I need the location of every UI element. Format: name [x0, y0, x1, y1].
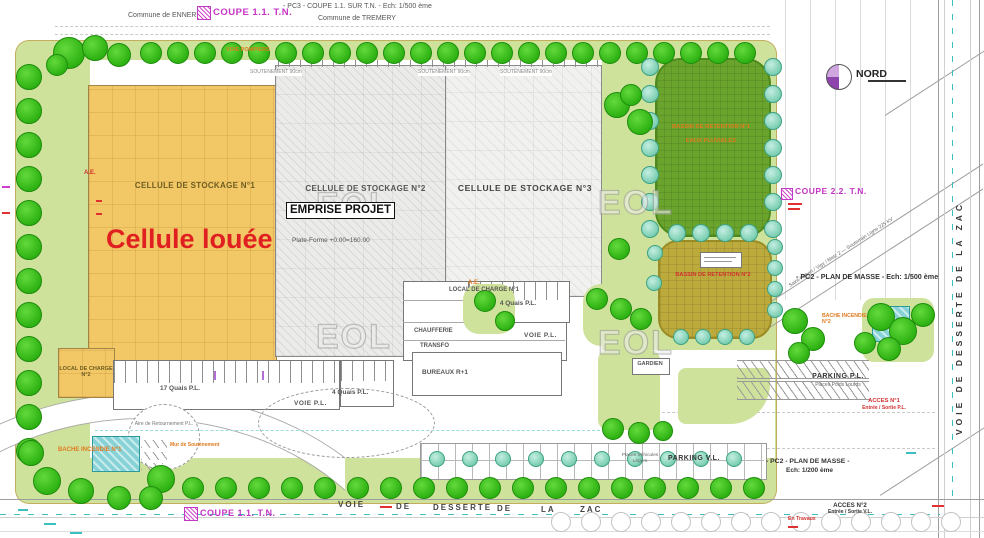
tree-icon — [528, 451, 544, 467]
fire-lane-label: VOIE POMPIERS — [226, 47, 270, 53]
parking-vl-label: PARKING V.L. — [668, 455, 720, 463]
tree-icon — [429, 451, 445, 467]
tree-icon — [641, 139, 659, 157]
tree-icon — [764, 85, 782, 103]
access-2-sub: Entrée / Sortie V.L. — [812, 510, 888, 516]
tree-icon — [644, 477, 666, 499]
tree-icon — [107, 43, 131, 67]
retaining-note: SOUTENEMENT 90cm — [250, 70, 302, 76]
parked-car-outline — [551, 512, 571, 532]
tree-icon — [764, 112, 782, 130]
tree-icon — [854, 332, 876, 354]
parked-car-outline — [641, 512, 661, 532]
parking-pl-label: PARKING P.L. — [792, 373, 884, 381]
parked-car-outline — [941, 512, 961, 532]
charge-room-2-label: LOCAL DE CHARGE N°2 — [56, 366, 116, 379]
tree-icon — [464, 42, 486, 64]
parked-car-outline — [701, 512, 721, 532]
tree-icon — [33, 467, 61, 495]
tree-icon — [608, 238, 630, 260]
voie-pl-label: VOIE P.L. — [294, 400, 327, 407]
tree-icon — [710, 477, 732, 499]
tick-mark — [788, 203, 802, 205]
tree-icon — [479, 477, 501, 499]
retaining-note: SOUTENEMENT 90cm — [418, 70, 470, 76]
parked-car-outline — [911, 512, 931, 532]
tree-icon — [788, 342, 810, 364]
tree-icon — [641, 85, 659, 103]
basin1-label: BASSIN DE RETENTION N°1 — [664, 124, 758, 131]
tick-mark — [262, 371, 264, 380]
tree-icon — [764, 139, 782, 157]
cell2-label: CELLULE DE STOCKAGE N°2 — [298, 184, 433, 193]
tree-icon — [653, 421, 673, 441]
cell1-label: CELLULE DE STOCKAGE N°1 — [120, 181, 270, 190]
dock-count-west: 17 Quais P.L. — [160, 385, 200, 392]
tree-icon — [16, 404, 42, 430]
tick-mark — [788, 208, 800, 210]
compass-icon — [826, 64, 852, 90]
tree-icon — [462, 451, 478, 467]
parked-car-outline — [731, 512, 751, 532]
compass-label: NORD — [856, 68, 887, 80]
tick-mark — [18, 509, 28, 511]
office-label: BUREAUX R+1 — [422, 369, 468, 376]
site-plan: Saint-Hubert / Vigy / Metz 2 — Souterrai… — [0, 0, 984, 538]
tree-icon — [647, 245, 663, 261]
voie-pl-label: VOIE P.L. — [524, 332, 557, 339]
tree-icon — [578, 477, 600, 499]
coupe-22-label: COUPE 2.2. T.N. — [795, 187, 867, 197]
eol-watermark: EOL — [598, 184, 674, 223]
access-1-sub: Entrée / Sortie P.L. — [846, 406, 922, 412]
fire-tank-1-label: BACHE INCENDIE N°1 — [58, 447, 130, 454]
tree-icon — [46, 54, 68, 76]
parking-pl-sub: Places Poids Lourds — [796, 383, 880, 389]
dock-count-cell3: 4 Quais P.L. — [488, 300, 548, 307]
tree-icon — [602, 418, 624, 440]
tree-icon — [437, 42, 459, 64]
tick-mark — [96, 213, 102, 215]
tree-icon — [16, 64, 42, 90]
tree-icon — [16, 234, 42, 260]
coupe-top-label: COUPE 1.1. T.N. — [213, 8, 292, 19]
road-name-word: LA — [541, 505, 556, 514]
tree-icon — [16, 302, 42, 328]
transfo-label: TRANSFO — [420, 343, 449, 350]
road-name-word: DESSERTE — [433, 503, 492, 512]
tree-icon — [716, 224, 734, 242]
tree-icon — [495, 311, 515, 331]
turning-area-label: Aire de Retournement P.L. — [131, 422, 197, 428]
road-name-word: ZAC — [580, 505, 602, 514]
tick-mark — [96, 200, 102, 202]
tree-icon — [594, 451, 610, 467]
tree-icon — [194, 42, 216, 64]
plateforme-note: Plate-Forme +0.00=160.00 — [292, 237, 370, 244]
tick-mark — [44, 523, 56, 525]
tree-icon — [764, 166, 782, 184]
tree-icon — [139, 486, 163, 510]
tree-icon — [82, 35, 108, 61]
tree-icon — [16, 268, 42, 294]
fire-tank-2-label: BACHE INCENDIE N°2 — [822, 314, 870, 326]
ae-note: A.E. — [84, 170, 96, 177]
basin1-label2: EAUX PLUVIALES — [672, 138, 750, 145]
pc2-bottom-scale: Ech: 1/200 ème — [786, 467, 833, 474]
tree-icon — [767, 302, 783, 318]
tree-icon — [140, 42, 162, 64]
pc2-right-note: - PC2 - PLAN DE MASSE - Ech: 1/500 ème — [796, 273, 938, 281]
tick-mark — [2, 212, 10, 214]
commune-right-label: Commune de TREMERY — [318, 15, 396, 23]
tree-icon — [767, 239, 783, 255]
tree-icon — [646, 275, 662, 291]
tree-icon — [16, 132, 42, 158]
tick-mark — [868, 80, 906, 82]
tree-icon — [545, 42, 567, 64]
road-name-word: DE — [497, 504, 512, 513]
coupe-11-bottom-label: COUPE 1.1. T.N. — [200, 508, 276, 518]
tree-icon — [767, 260, 783, 276]
tree-icon — [764, 193, 782, 211]
tree-icon — [680, 42, 702, 64]
emprise-projet-box: EMPRISE PROJET — [286, 202, 395, 219]
tree-icon — [167, 42, 189, 64]
retaining-note: SOUTENEMENT 90cm — [500, 70, 552, 76]
tree-icon — [68, 478, 94, 504]
tick-mark — [906, 452, 916, 454]
parked-car-outline — [611, 512, 631, 532]
tree-icon — [717, 329, 733, 345]
tree-icon — [620, 84, 642, 106]
tree-icon — [16, 166, 42, 192]
tree-icon — [673, 329, 689, 345]
tree-icon — [518, 42, 540, 64]
tree-icon — [695, 329, 711, 345]
tree-icon — [495, 451, 511, 467]
tree-icon — [380, 477, 402, 499]
coupe-chip — [197, 6, 211, 20]
cell1-rented-note: Cellule louée — [106, 224, 273, 255]
tree-icon — [743, 477, 765, 499]
tree-icon — [628, 422, 650, 444]
tree-icon — [764, 58, 782, 76]
pc2-bottom-note: - PC2 - PLAN DE MASSE - — [766, 458, 849, 466]
tree-icon — [356, 42, 378, 64]
parking-vl-sub: Places Véhicules Légers — [616, 453, 664, 464]
tree-icon — [627, 109, 653, 135]
tree-icon — [410, 42, 432, 64]
tree-icon — [668, 224, 686, 242]
tree-icon — [16, 200, 42, 226]
tree-icon — [586, 288, 608, 310]
tree-icon — [446, 477, 468, 499]
tree-icon — [275, 42, 297, 64]
tree-icon — [611, 477, 633, 499]
tree-icon — [726, 451, 742, 467]
tree-icon — [16, 370, 42, 396]
tree-icon — [572, 42, 594, 64]
tick-mark — [932, 505, 944, 507]
tree-icon — [739, 329, 755, 345]
tree-icon — [329, 42, 351, 64]
tick-mark — [214, 371, 216, 380]
eol-watermark: EOL — [316, 318, 392, 357]
chaufferie-label: CHAUFFERIE — [414, 328, 453, 335]
tree-icon — [383, 42, 405, 64]
tree-icon — [641, 166, 659, 184]
tree-icon — [767, 281, 783, 297]
road-name-word: DE — [396, 502, 411, 511]
tree-icon — [707, 42, 729, 64]
tree-icon — [692, 224, 710, 242]
guard-house-label: GARDIEN — [632, 361, 668, 367]
tree-icon — [545, 477, 567, 499]
tree-icon — [16, 98, 42, 124]
tree-icon — [911, 303, 935, 327]
parked-car-outline — [581, 512, 601, 532]
tree-icon — [182, 477, 204, 499]
tree-icon — [18, 440, 44, 466]
access-1-label: ACCES N°1 — [852, 398, 916, 405]
tree-icon — [347, 477, 369, 499]
tick-mark — [70, 532, 82, 534]
tree-icon — [740, 224, 758, 242]
basin2-label: BASSIN DE RETENTION N°2 — [664, 272, 762, 278]
ae-note: A.E. — [468, 280, 480, 287]
pc3-note: - PC3 - COUPE 1.1. SUR T.N. - Ech: 1/500… — [283, 3, 432, 11]
tree-icon — [599, 42, 621, 64]
tree-icon — [677, 477, 699, 499]
tree-icon — [314, 477, 336, 499]
parked-car-outline — [671, 512, 691, 532]
works-note: En Travaux — [788, 517, 816, 523]
coupe-chip — [184, 507, 198, 521]
tick-mark — [788, 526, 798, 528]
tick-mark — [380, 506, 392, 508]
tree-icon — [491, 42, 513, 64]
cell3-label: CELLULE DE STOCKAGE N°3 — [455, 184, 595, 194]
retaining-wall-label: Mur de Soutènement — [170, 443, 224, 449]
tree-icon — [877, 337, 901, 361]
tree-icon — [610, 298, 632, 320]
eol-watermark: EOL — [598, 324, 674, 363]
dock-count-4: 4 Quais P.L. — [332, 389, 368, 396]
tree-icon — [561, 451, 577, 467]
coupe-chip — [781, 188, 793, 200]
tree-icon — [734, 42, 756, 64]
tree-icon — [281, 477, 303, 499]
road-name-word: VOIE — [338, 500, 365, 509]
tree-icon — [641, 58, 659, 76]
tree-icon — [302, 42, 324, 64]
charge-room-1-label: LOCAL DE CHARGE N°1 — [406, 287, 562, 294]
commune-left-label: Commune de ENNERY — [128, 12, 201, 20]
parked-car-outline — [761, 512, 781, 532]
tree-icon — [512, 477, 534, 499]
tree-icon — [413, 477, 435, 499]
tree-icon — [16, 336, 42, 362]
tree-icon — [107, 486, 131, 510]
tree-icon — [764, 220, 782, 238]
tick-mark — [2, 186, 10, 188]
tree-icon — [215, 477, 237, 499]
tree-icon — [248, 477, 270, 499]
